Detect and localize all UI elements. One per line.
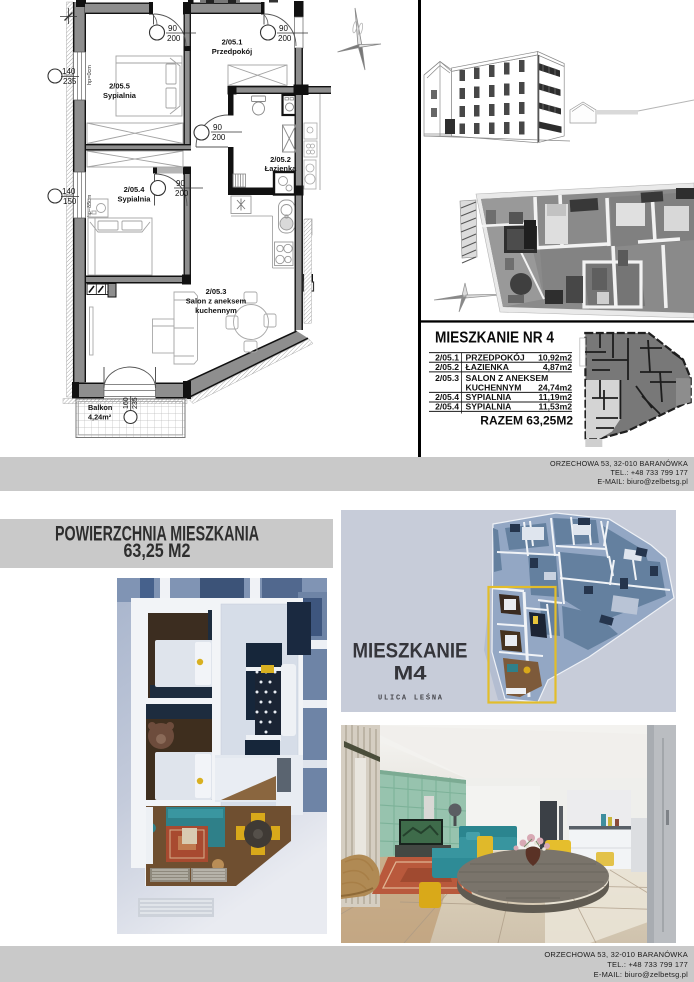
svg-text:2/05.4: 2/05.4 — [435, 402, 459, 412]
svg-text:KUCHENNYM: KUCHENNYM — [466, 383, 522, 393]
svg-text:RAZEM 63,25M2: RAZEM 63,25M2 — [480, 414, 573, 428]
svg-text:2/05.3: 2/05.3 — [206, 287, 227, 296]
svg-text:SYPIALNIA: SYPIALNIA — [466, 392, 512, 402]
svg-text:Sypialnia: Sypialnia — [103, 91, 137, 100]
svg-text:2/05.4: 2/05.4 — [124, 185, 146, 194]
svg-text:2/05.1: 2/05.1 — [222, 38, 243, 47]
svg-text:Sypialnia: Sypialnia — [118, 195, 152, 204]
svg-text:MIESZKANIE NR 4: MIESZKANIE NR 4 — [435, 330, 554, 347]
svg-text:2/05.5: 2/05.5 — [109, 82, 130, 91]
svg-text:SALON Z ANEKSEM: SALON Z ANEKSEM — [466, 373, 549, 383]
svg-text:11,19m2: 11,19m2 — [539, 392, 573, 402]
svg-text:63,25 M2: 63,25 M2 — [124, 541, 191, 562]
svg-text:Przedpokój: Przedpokój — [212, 47, 252, 56]
svg-text:10,92m2: 10,92m2 — [538, 352, 572, 362]
svg-text:11,53m2: 11,53m2 — [539, 402, 573, 412]
svg-text:2/05.2: 2/05.2 — [435, 362, 459, 372]
svg-text:2/05.1: 2/05.1 — [435, 352, 459, 362]
svg-text:SYPIALNIA: SYPIALNIA — [466, 402, 512, 412]
svg-text:Salon z aneksem: Salon z aneksem — [186, 297, 247, 306]
svg-text:ŁAZIENKA: ŁAZIENKA — [466, 362, 509, 372]
svg-text:2/05.4: 2/05.4 — [435, 392, 459, 402]
svg-text:kuchennym: kuchennym — [195, 306, 237, 315]
svg-text:24,74m2: 24,74m2 — [538, 383, 572, 393]
svg-text:4,87m2: 4,87m2 — [543, 362, 572, 372]
svg-text:PRZEDPOKÓJ: PRZEDPOKÓJ — [466, 351, 525, 362]
svg-text:Łazienka: Łazienka — [265, 164, 298, 173]
svg-text:2/05.3: 2/05.3 — [435, 373, 459, 383]
svg-text:2/05.2: 2/05.2 — [270, 155, 291, 164]
